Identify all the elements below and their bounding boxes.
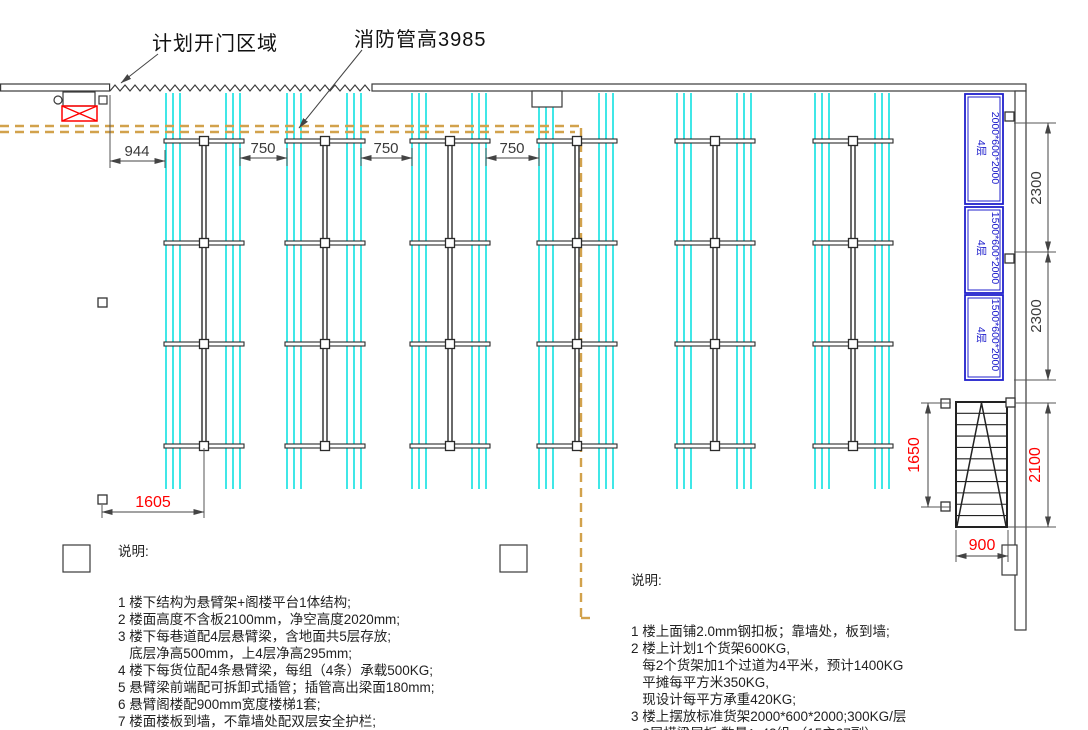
note-line: 底层净高500mm，上4层净高295mm; [118, 645, 497, 662]
fire-pipe-label: 消防管高3985 [354, 23, 487, 52]
wall-rack-2-layers: 4层 [975, 240, 987, 256]
note-line: 平摊每平方米350KG, [631, 674, 906, 691]
dim-label-750-1: 750 [250, 140, 275, 157]
dim-label-2300-2: 2300 [1028, 299, 1045, 332]
dim-label-750-2: 750 [373, 140, 398, 157]
note-line: 4 楼下每货位配4条悬臂梁，每组（4条）承载500KG; [118, 662, 497, 679]
note-line: 1 楼下结构为悬臂架+阁楼平台1体结构; [118, 594, 497, 611]
wall-rack-2-size: 1500*600*2000 [989, 212, 1001, 285]
note-line: 2 楼上计划1个货架600KG, [631, 640, 906, 657]
dim-label-2300-1: 2300 [1028, 171, 1045, 204]
notes-left-title: 说明: [118, 543, 497, 560]
dim-label-900: 900 [969, 537, 996, 554]
dim-label-750-3: 750 [499, 140, 524, 157]
note-line: 现设计每平方承重420KG; [631, 691, 906, 708]
notes-right: 说明: 1 楼上面铺2.0mm钢扣板；靠墙处，板到墙;2 楼上计划1个货架600… [631, 538, 906, 730]
staircase [956, 402, 1007, 527]
note-line: 7 楼面楼板到墙，不靠墙处配双层安全护栏; [118, 713, 497, 730]
wall-rack-1-layers: 4层 [975, 140, 987, 156]
wall-rack-3-layers: 4层 [975, 327, 987, 343]
wall-rack-1-size: 2000*600*2000 [989, 112, 1001, 185]
dim-label-2100: 2100 [1027, 447, 1044, 483]
door-equipment-area [54, 92, 107, 121]
door-area-label: 计划开门区域 [152, 27, 278, 56]
column-markers [98, 112, 1015, 511]
note-line: 3层横梁层板 数量：42组;（15主27副） [631, 725, 906, 730]
note-line: 1 楼上面铺2.0mm钢扣板；靠墙处，板到墙; [631, 623, 906, 640]
note-line: 5 悬臂梁前端配可拆卸式插管；插管高出梁面180mm; [118, 679, 497, 696]
wall-rack-3-size: 1500*600*2000 [989, 299, 1001, 372]
dim-label-1650: 1650 [906, 437, 923, 473]
cad-drawing-canvas: 944 750 750 750 1605 2300 2300 1650 2100… [0, 0, 1088, 730]
notes-left: 说明: 1 楼下结构为悬臂架+阁楼平台1体结构;2 楼面高度不含板2100mm，… [118, 509, 497, 730]
note-line: 3 楼上摆放标准货架2000*600*2000;300KG/层 [631, 708, 906, 725]
note-line: 2 楼面高度不含板2100mm，净空高度2020mm; [118, 611, 497, 628]
notes-right-title: 说明: [631, 572, 906, 589]
note-line: 6 悬臂阁楼配900mm宽度楼梯1套; [118, 696, 497, 713]
cantilever-racks [164, 137, 893, 451]
note-line: 每2个货架加1个过道为4平米，预计1400KG [631, 657, 906, 674]
dim-label-944: 944 [124, 143, 149, 160]
note-line: 3 楼下每巷道配4层悬臂梁，含地面共5层存放; [118, 628, 497, 645]
